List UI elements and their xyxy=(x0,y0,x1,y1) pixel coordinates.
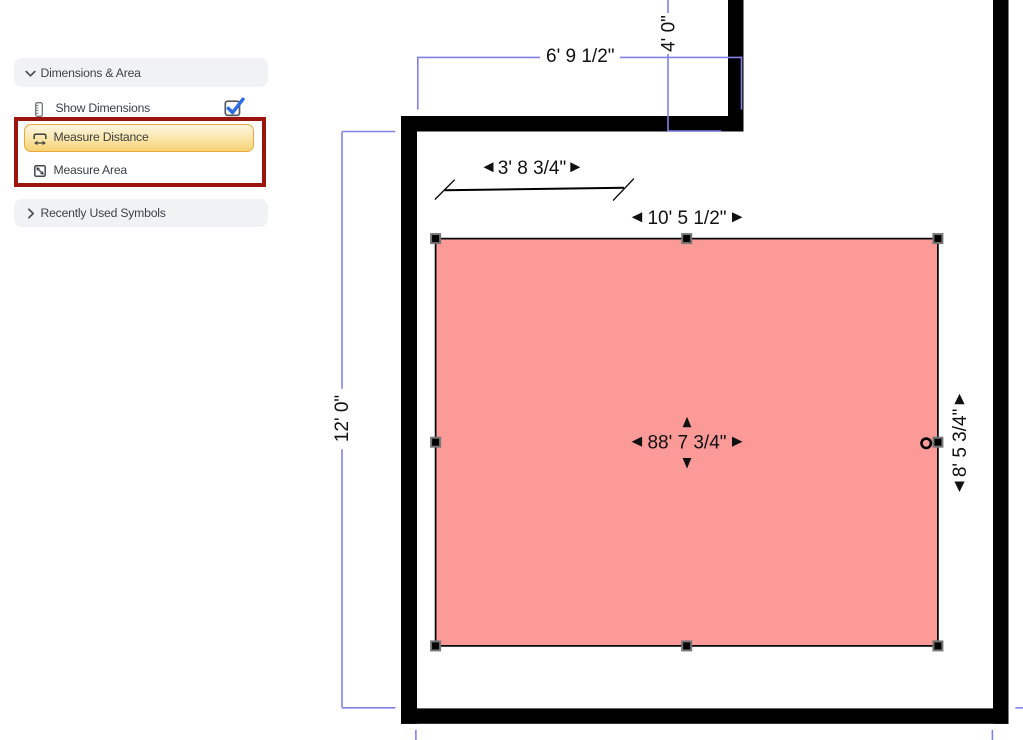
svg-text:88' 7 3/4": 88' 7 3/4" xyxy=(647,432,726,453)
svg-text:12' 0": 12' 0" xyxy=(332,395,353,442)
svg-text:4' 0": 4' 0" xyxy=(659,15,680,52)
svg-text:10' 5 1/2": 10' 5 1/2" xyxy=(647,208,726,229)
svg-text:8' 5 3/4": 8' 5 3/4" xyxy=(950,409,971,477)
svg-text:3' 8 3/4": 3' 8 3/4" xyxy=(498,158,566,179)
svg-text:6' 9 1/2": 6' 9 1/2" xyxy=(546,46,614,67)
